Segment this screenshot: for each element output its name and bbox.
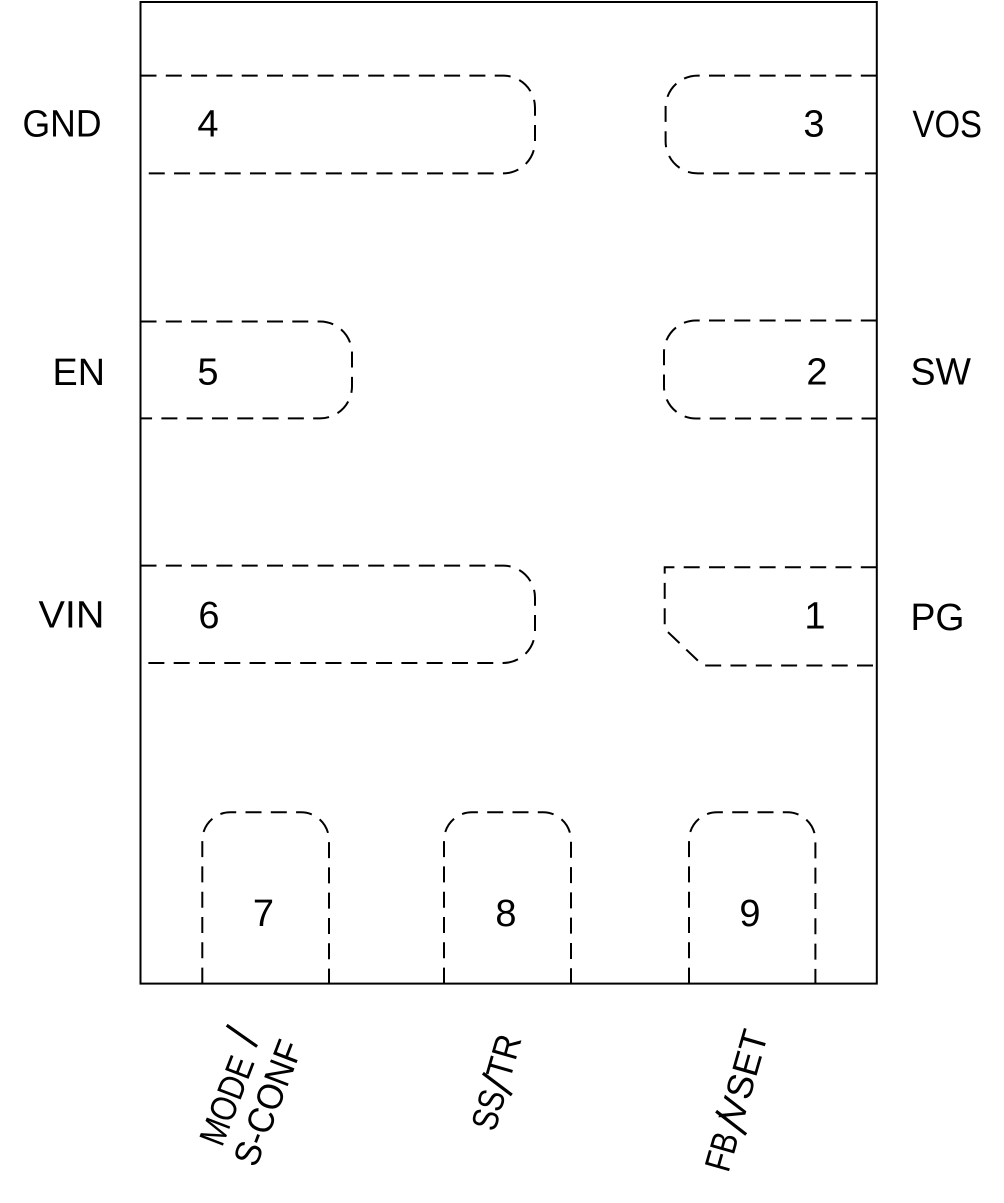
svg-text:2: 2 bbox=[806, 352, 827, 394]
svg-text:VIN: VIN bbox=[39, 595, 105, 637]
svg-text:VSET: VSET bbox=[711, 1025, 776, 1127]
svg-text:1: 1 bbox=[804, 596, 825, 638]
svg-text:7: 7 bbox=[253, 893, 274, 935]
svg-text:PG: PG bbox=[911, 597, 965, 639]
svg-text:GND: GND bbox=[23, 104, 102, 146]
svg-text:5: 5 bbox=[197, 352, 218, 394]
svg-text:6: 6 bbox=[198, 595, 219, 637]
svg-text:3: 3 bbox=[803, 104, 824, 146]
svg-text:FB: FB bbox=[697, 1127, 747, 1175]
svg-text:9: 9 bbox=[739, 893, 760, 935]
svg-text:SW: SW bbox=[911, 352, 972, 394]
svg-text:VOS: VOS bbox=[913, 104, 983, 146]
svg-text:EN: EN bbox=[53, 352, 106, 394]
svg-text:8: 8 bbox=[495, 893, 516, 935]
svg-text:4: 4 bbox=[197, 104, 218, 146]
